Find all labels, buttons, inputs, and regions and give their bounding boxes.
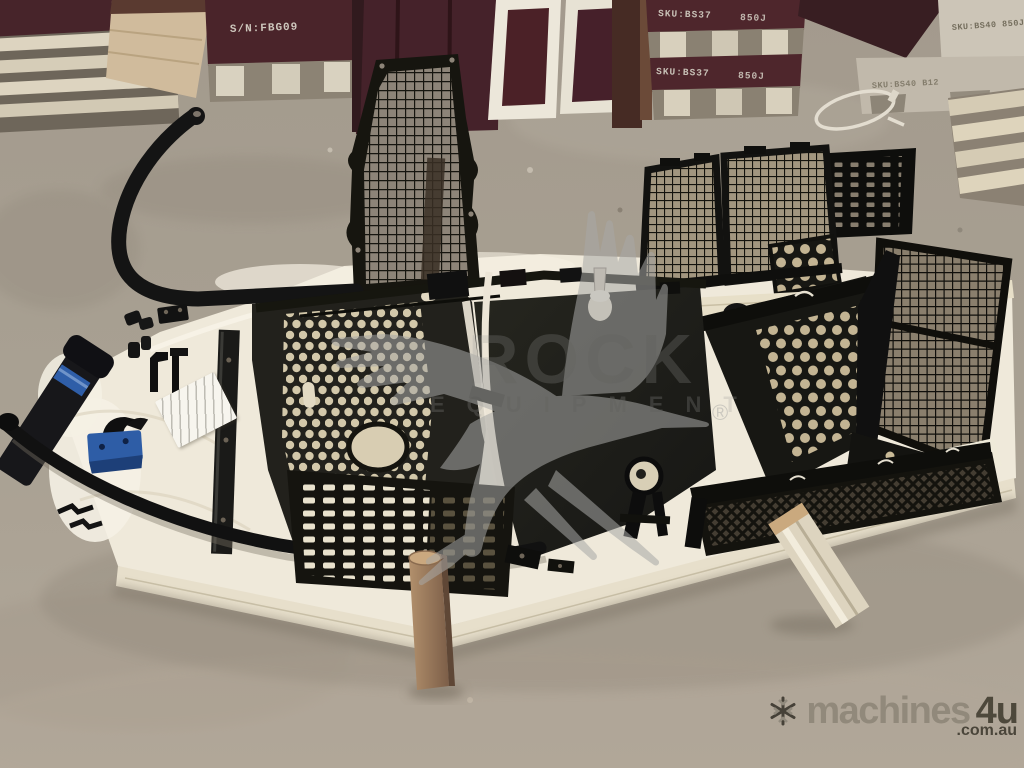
crate-stencil-code-lower: 850J [738,70,765,82]
crate-stencil-sku-upper: SKU:BS37 [658,8,712,21]
brown-crate-edge [612,0,652,128]
latch-bracket [427,270,469,300]
watermark-brand-word2: EQUIPMENT [430,392,759,417]
tube-end-hole [193,111,201,117]
warehouse-photo: S/N:FBG09 S [0,0,1024,768]
pallet-stack-right [948,88,1024,206]
site-logo-brand: machines [806,692,969,730]
crate-stencil-sku-lower: SKU:BS37 [656,66,710,79]
crate-maroon-left: S/N:FBG09 [205,0,360,102]
watermark-brand-word: ROCK [468,320,698,398]
photo-canvas: S/N:FBG09 S [0,0,1024,768]
site-logo-tld: .com.au [957,723,1017,739]
crate-stencil-sn: S/N:FBG09 [230,22,299,36]
machines4u-asterisk-icon [766,694,800,728]
crate-white-framed-a [488,0,561,120]
crate-maroon-right-stack: SKU:BS37 850J SKU:BS37 850J [646,0,806,120]
registered-trademark-symbol: ® [712,400,728,425]
crate-stencil-code-upper: 850J [740,12,767,24]
site-logo: machines4u .com.au [722,692,1018,739]
plate-oval-hole [349,424,407,470]
